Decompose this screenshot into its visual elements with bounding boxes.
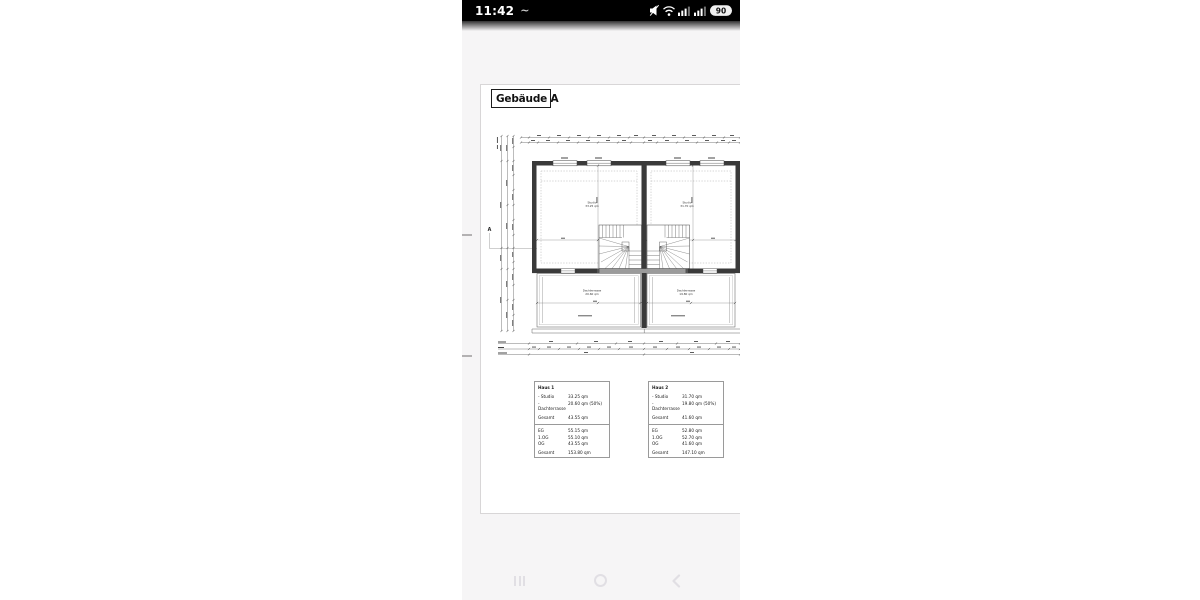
table-row: Gesamt43.55 qm (538, 415, 606, 420)
notification-wave-icon: ~ (520, 4, 529, 17)
staircase-right (647, 225, 690, 269)
table-row: 1.OG55.10 qm (538, 435, 606, 440)
left-dimension-chain (497, 135, 514, 332)
area-table-haus-2: Haus 2 - Studio31.70 qm - Dachterrasse19… (648, 381, 724, 458)
section-marker: A (488, 227, 537, 249)
status-icons: 90 (649, 4, 733, 17)
table-row: OG43.55 qm (538, 441, 606, 446)
studio-left-area: 33.25 qm (585, 204, 599, 208)
table-row: 1.OG52.70 qm (652, 435, 720, 440)
table-row: EG52.80 qm (652, 428, 720, 433)
room-labels-studio: Studio 33.25 qm Studio 31.70 qm (585, 201, 694, 209)
terraces (536, 274, 736, 328)
table-row: Gesamt153.80 qm (538, 450, 606, 455)
terrace-right-area: 19.80 qm (679, 292, 693, 296)
wifi-icon (664, 7, 675, 16)
recents-icon (514, 576, 516, 586)
table-row: Gesamt41.60 qm (652, 415, 720, 420)
table-row: - Dachterrasse19.80 qm (50%) (652, 401, 720, 412)
back-button[interactable] (671, 574, 681, 588)
table-title: Haus 1 (538, 385, 606, 390)
area-table-haus-1: Haus 1 - Studio33.25 qm - Dachterrasse20… (534, 381, 610, 458)
gutter-mark (462, 355, 472, 357)
table-row: OG41.60 qm (652, 441, 720, 446)
section-label: A (488, 227, 492, 233)
phone-screen: 11:42 ~ (462, 0, 740, 600)
table-row: - Studio31.70 qm (652, 394, 720, 399)
back-icon (674, 576, 680, 587)
table-title: Haus 2 (652, 385, 720, 390)
recents-icon (523, 576, 525, 586)
table-divider (649, 424, 723, 425)
status-bar-fade (462, 21, 740, 31)
table-row: EG55.15 qm (538, 428, 606, 433)
top-dimension-chain (520, 136, 740, 144)
table-row: Gesamt147.10 qm (652, 450, 720, 455)
staircase-left (599, 225, 642, 269)
status-bar: 11:42 ~ (462, 0, 740, 21)
recents-button[interactable] (514, 576, 527, 586)
studio-right-area: 31.70 qm (680, 204, 694, 208)
home-button[interactable] (594, 574, 607, 587)
room-labels-terrace: Dachterrasse 20.60 qm Dachterrasse 19.80… (583, 289, 696, 297)
table-divider (535, 424, 609, 425)
eaves-lines (532, 329, 740, 333)
signal-bars-icon (678, 7, 690, 16)
battery-percent: 90 (716, 7, 726, 16)
mute-icon (650, 5, 659, 15)
status-time: 11:42 (475, 4, 514, 18)
table-row: - Studio33.25 qm (538, 394, 606, 399)
signal-bars-2-icon (694, 7, 706, 16)
recents-icon (519, 576, 521, 586)
terrace-left-area: 20.60 qm (585, 292, 599, 296)
battery-icon: 90 (710, 5, 732, 16)
bottom-dimension-chain (498, 342, 740, 356)
gutter-mark (462, 234, 472, 236)
table-row: - Dachterrasse20.60 qm (50%) (538, 401, 606, 412)
floor-plan: A (481, 85, 740, 377)
document-page[interactable]: Gebäude A (480, 84, 740, 514)
